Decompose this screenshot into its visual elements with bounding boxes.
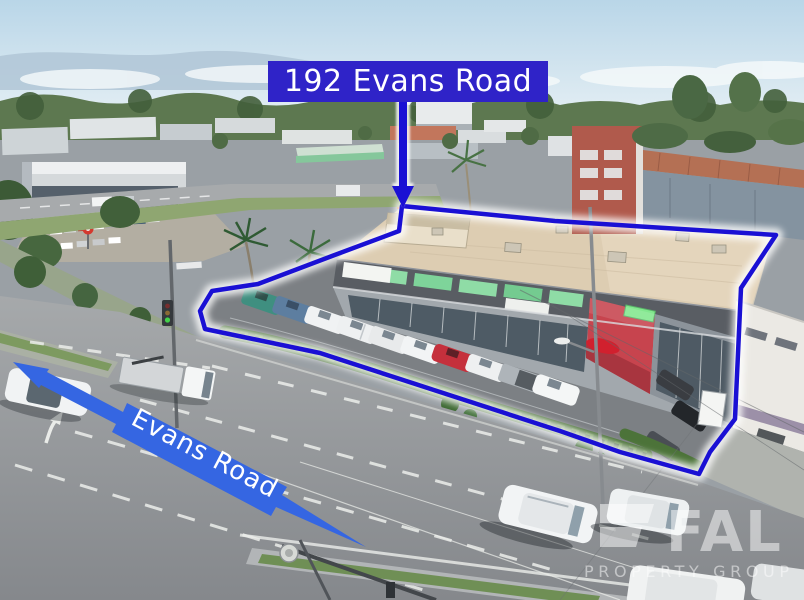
watermark-icon <box>600 504 654 523</box>
photo-canvas: 192 Evans Road Evans Road FAL PROPERTY G… <box>0 0 804 600</box>
street-lamp <box>554 338 570 345</box>
address-label: 192 Evans Road <box>268 61 548 102</box>
address-label-text: 192 Evans Road <box>284 64 532 99</box>
watermark-tagline: PROPERTY GROUP <box>584 562 794 581</box>
watermark-icon-bar <box>600 527 642 547</box>
yard-sign-board <box>698 390 726 427</box>
watermark: FAL PROPERTY GROUP <box>584 500 794 581</box>
aerial-property-photo: 192 Evans Road Evans Road FAL PROPERTY G… <box>0 0 804 600</box>
watermark-brand: FAL <box>666 500 783 565</box>
